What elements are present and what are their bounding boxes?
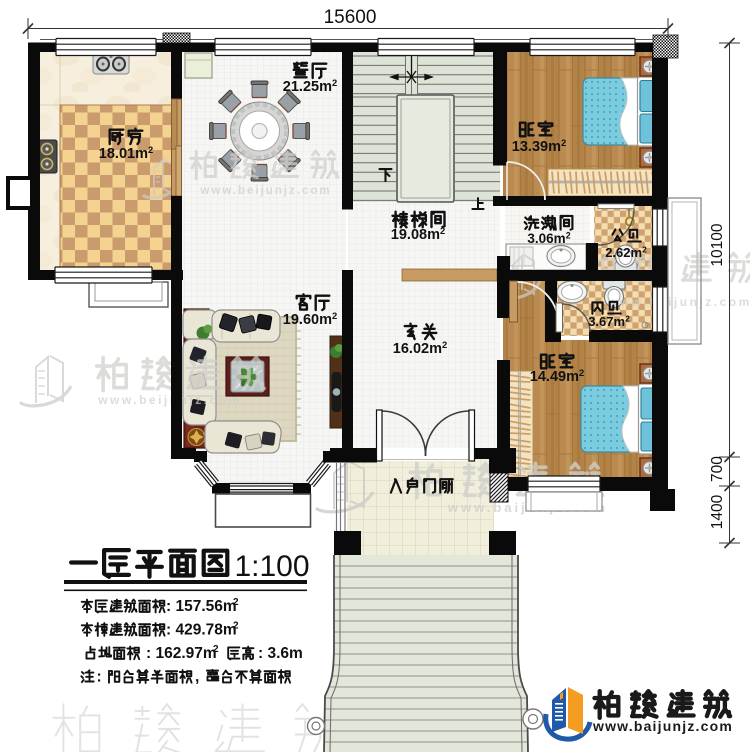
svg-text:16.02m2: 16.02m2 bbox=[393, 339, 447, 357]
svg-text:: 429.78m: : 429.78m bbox=[166, 622, 237, 639]
svg-text:www.baijunjz.com: www.baijunjz.com bbox=[592, 718, 733, 734]
svg-text:3.06m2: 3.06m2 bbox=[527, 230, 570, 246]
svg-text:: 3.6m: : 3.6m bbox=[258, 645, 303, 662]
svg-text:3.67m2: 3.67m2 bbox=[588, 314, 630, 330]
svg-text:1:100: 1:100 bbox=[234, 550, 309, 583]
svg-text:21.25m2: 21.25m2 bbox=[283, 77, 337, 95]
svg-text:www.beijunjz.com: www.beijunjz.com bbox=[199, 185, 331, 197]
svg-text:15600: 15600 bbox=[324, 7, 377, 28]
svg-text:1400: 1400 bbox=[709, 494, 726, 529]
svg-text:14.49m2: 14.49m2 bbox=[530, 367, 584, 385]
svg-text:: 162.97m: : 162.97m bbox=[146, 645, 217, 662]
svg-text:2: 2 bbox=[233, 621, 239, 632]
svg-text:700: 700 bbox=[709, 456, 726, 482]
svg-text:2: 2 bbox=[233, 597, 239, 608]
svg-text:www.beijunjz.com: www.beijunjz.com bbox=[607, 295, 750, 309]
svg-text::: : bbox=[97, 669, 102, 686]
svg-text:19.08m2: 19.08m2 bbox=[391, 225, 445, 243]
svg-text:10100: 10100 bbox=[709, 223, 726, 266]
svg-text:2.62m2: 2.62m2 bbox=[605, 245, 647, 261]
svg-text:19.60m2: 19.60m2 bbox=[283, 310, 337, 328]
svg-text:2: 2 bbox=[213, 644, 219, 655]
svg-text:13.39m2: 13.39m2 bbox=[512, 137, 566, 155]
svg-text:,: , bbox=[195, 669, 199, 686]
svg-text:18.01m2: 18.01m2 bbox=[99, 144, 153, 162]
svg-text:: 157.56m: : 157.56m bbox=[166, 598, 237, 615]
svg-text:www.beijunjz.com: www.beijunjz.com bbox=[97, 393, 242, 407]
